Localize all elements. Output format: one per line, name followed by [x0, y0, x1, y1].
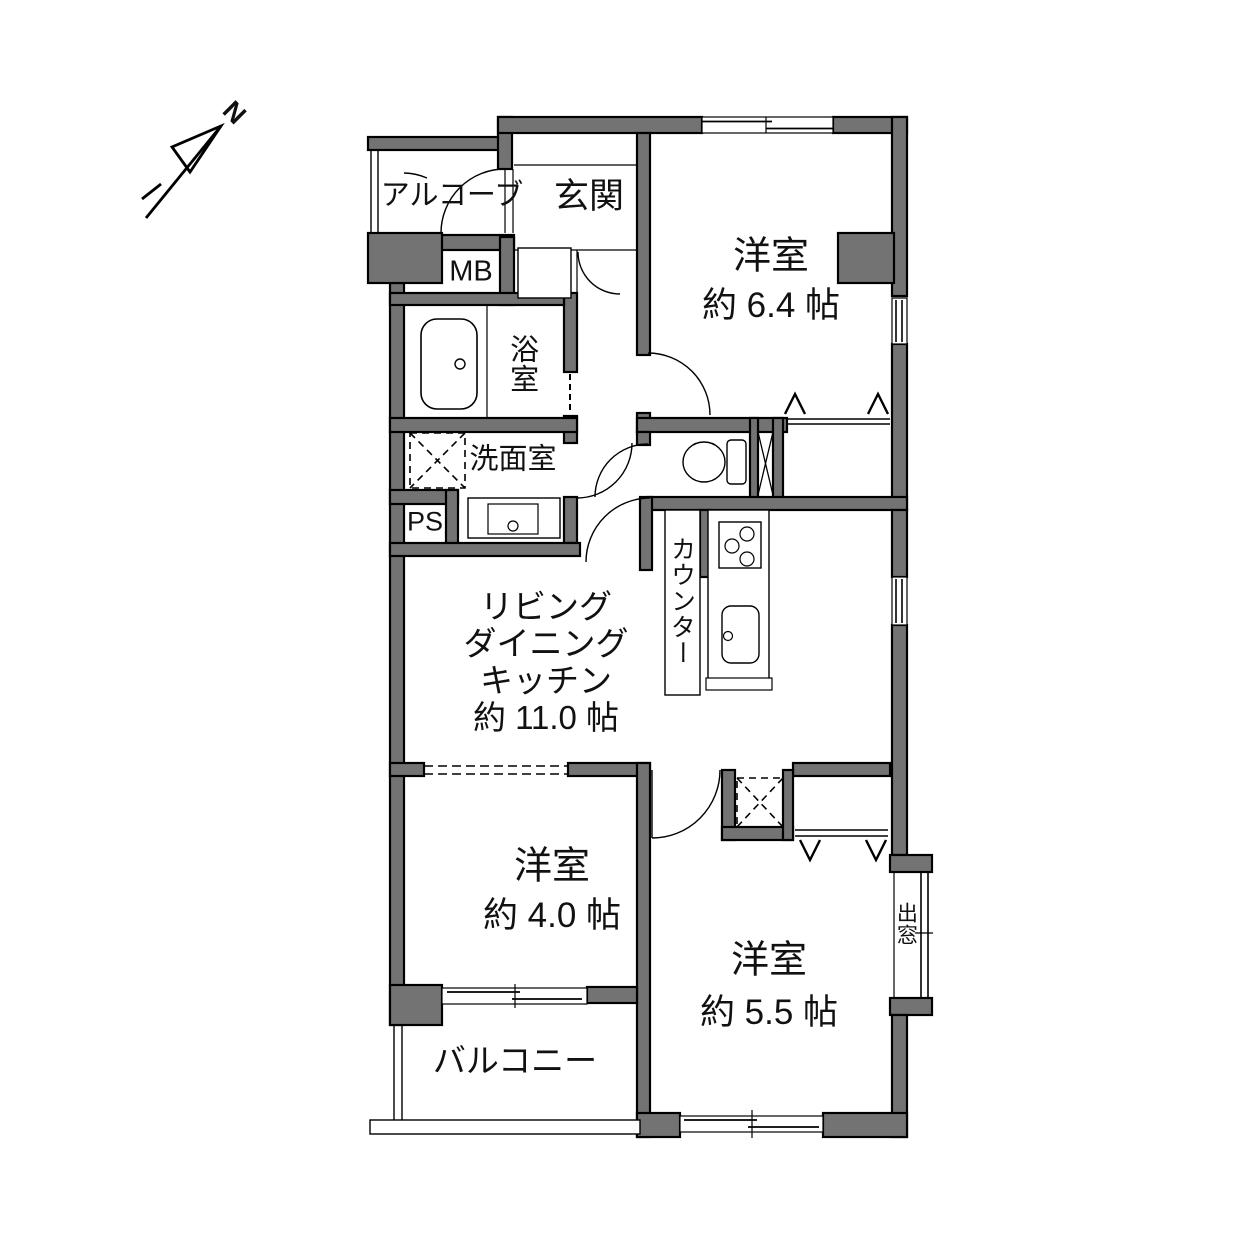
ldk-size: 約 11.0 帖: [464, 700, 629, 737]
bay-window-label: 出窓: [894, 902, 917, 946]
washroom-label: 洗面室: [469, 444, 556, 475]
bedroom2-size-label: 約 4.0 帖: [483, 897, 621, 935]
counter-label: カウンター: [668, 536, 695, 666]
ldk-label: リビング ダイニング キッチン 約 11.0 帖: [464, 589, 629, 737]
compass-icon: [142, 126, 221, 218]
bedroom1-size-label: 約 6.4 帖: [702, 287, 840, 325]
bedroom1-name-label: 洋室: [733, 236, 809, 277]
ldk-line3: キッチン: [464, 663, 629, 700]
pipe-space-label: PS: [407, 507, 443, 536]
fixtures: [410, 248, 783, 827]
bedroom3-name-label: 洋室: [731, 940, 807, 981]
bathroom-label: 浴室: [505, 334, 536, 394]
floorplan-page: N アルコーブ 玄関 洋室 約 6.4 帖 MB 浴室 洗面室 PS リビング …: [0, 0, 1252, 1252]
alcove-label: アルコーブ: [381, 180, 523, 211]
entrance-label: 玄関: [554, 178, 624, 216]
meter-box-label: MB: [449, 256, 493, 287]
ldk-line1: リビング: [464, 589, 629, 626]
ldk-line2: ダイニング: [464, 626, 629, 663]
bedroom2-name-label: 洋室: [514, 846, 590, 887]
balcony-label: バルコニー: [433, 1043, 597, 1079]
bedroom3-size-label: 約 5.5 帖: [700, 994, 838, 1032]
